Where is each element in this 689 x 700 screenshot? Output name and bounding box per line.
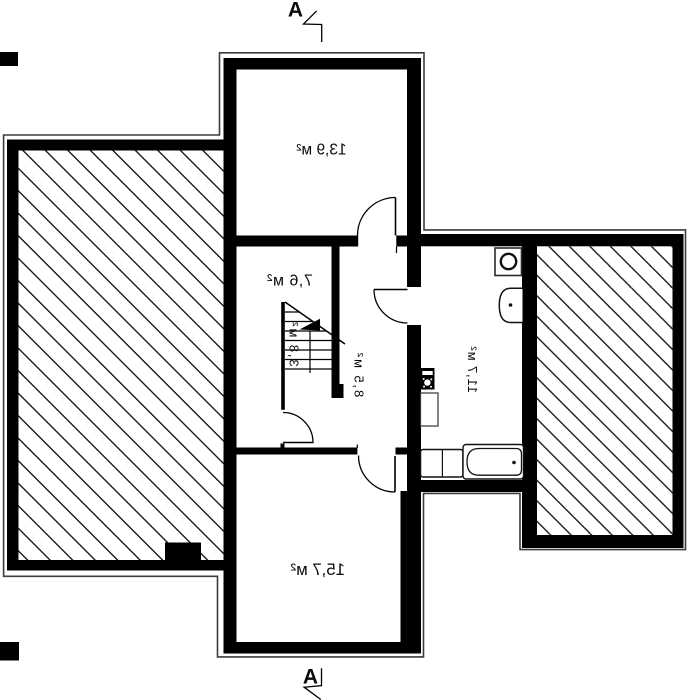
svg-text:A: A: [288, 0, 303, 22]
svg-text:11,7 м²: 11,7 м²: [465, 346, 480, 394]
svg-text:8,5 м²: 8,5 м²: [352, 351, 367, 397]
svg-text:13,9 м²: 13,9 м²: [296, 142, 346, 159]
svg-text:7,6 м²: 7,6 м²: [266, 273, 312, 290]
svg-text:15,7 м²: 15,7 м²: [290, 560, 345, 579]
svg-text:A: A: [303, 666, 318, 689]
svg-text:3,8 м²: 3,8 м²: [287, 320, 302, 366]
